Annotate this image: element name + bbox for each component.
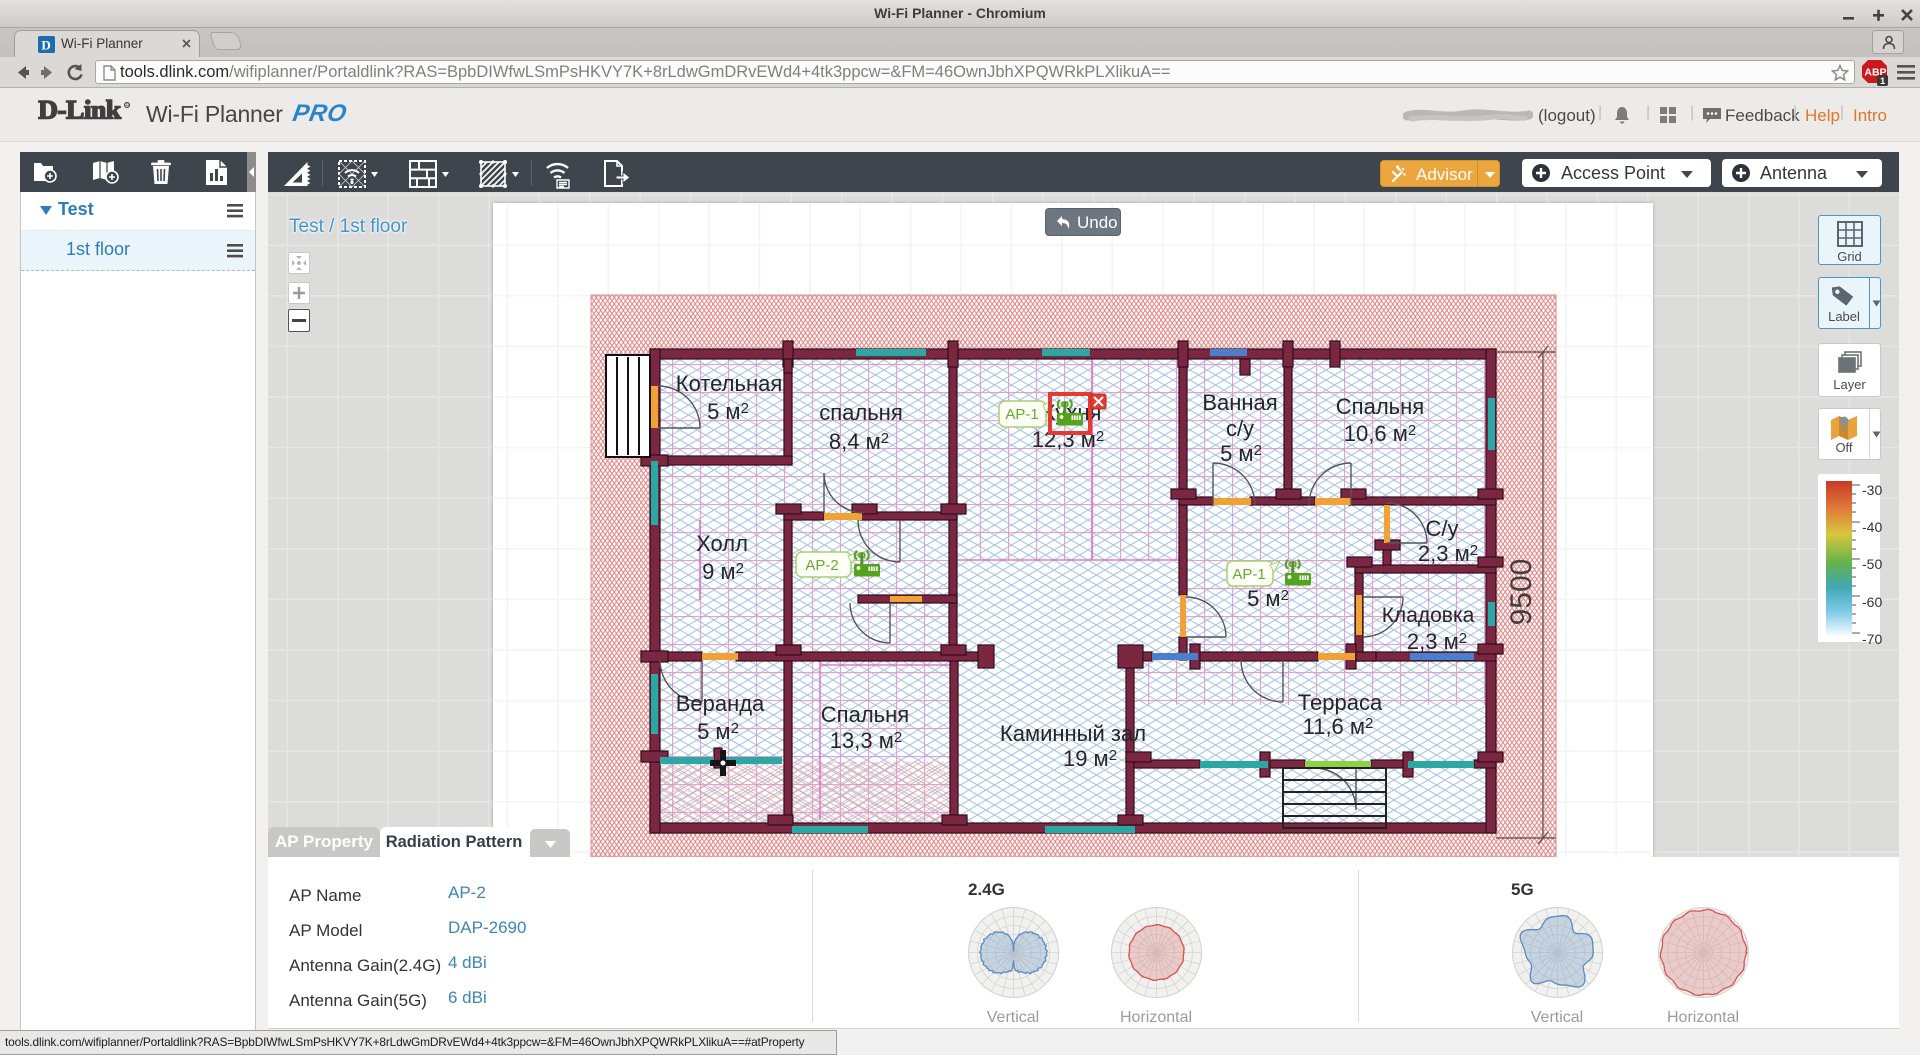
svg-text:2,3 м2: 2,3 м2 [1407, 629, 1467, 654]
svg-text:Терраса: Терраса [1298, 690, 1383, 715]
svg-text:Холл: Холл [696, 531, 748, 556]
svg-text:2,3 м2: 2,3 м2 [1418, 541, 1478, 566]
svg-text:Каминный зал: Каминный зал [1000, 721, 1146, 746]
svg-text:Веранда: Веранда [676, 691, 765, 716]
svg-text:11,6 м2: 11,6 м2 [1303, 714, 1374, 739]
svg-text:AP-1: AP-1 [1005, 406, 1038, 423]
svg-text:AP-2: AP-2 [805, 557, 838, 574]
svg-text:Ванная: Ванная [1202, 390, 1277, 415]
svg-text:12,3 м2: 12,3 м2 [1032, 427, 1104, 452]
svg-text:Спальня: Спальня [1336, 394, 1424, 419]
svg-text:AP-1: AP-1 [1232, 566, 1265, 583]
svg-text:8,4 м2: 8,4 м2 [829, 429, 889, 454]
svg-text:Спальня: Спальня [821, 702, 909, 727]
svg-text:10,6 м2: 10,6 м2 [1344, 421, 1416, 446]
svg-text:9500: 9500 [1505, 559, 1538, 626]
svg-text:с/у: с/у [1226, 416, 1254, 441]
svg-text:Котельная: Котельная [676, 371, 783, 396]
svg-text:13,3 м2: 13,3 м2 [830, 728, 902, 753]
svg-text:С/у: С/у [1426, 516, 1459, 541]
svg-text:спальня: спальня [819, 400, 903, 425]
svg-text:Кладовка: Кладовка [1382, 604, 1475, 627]
